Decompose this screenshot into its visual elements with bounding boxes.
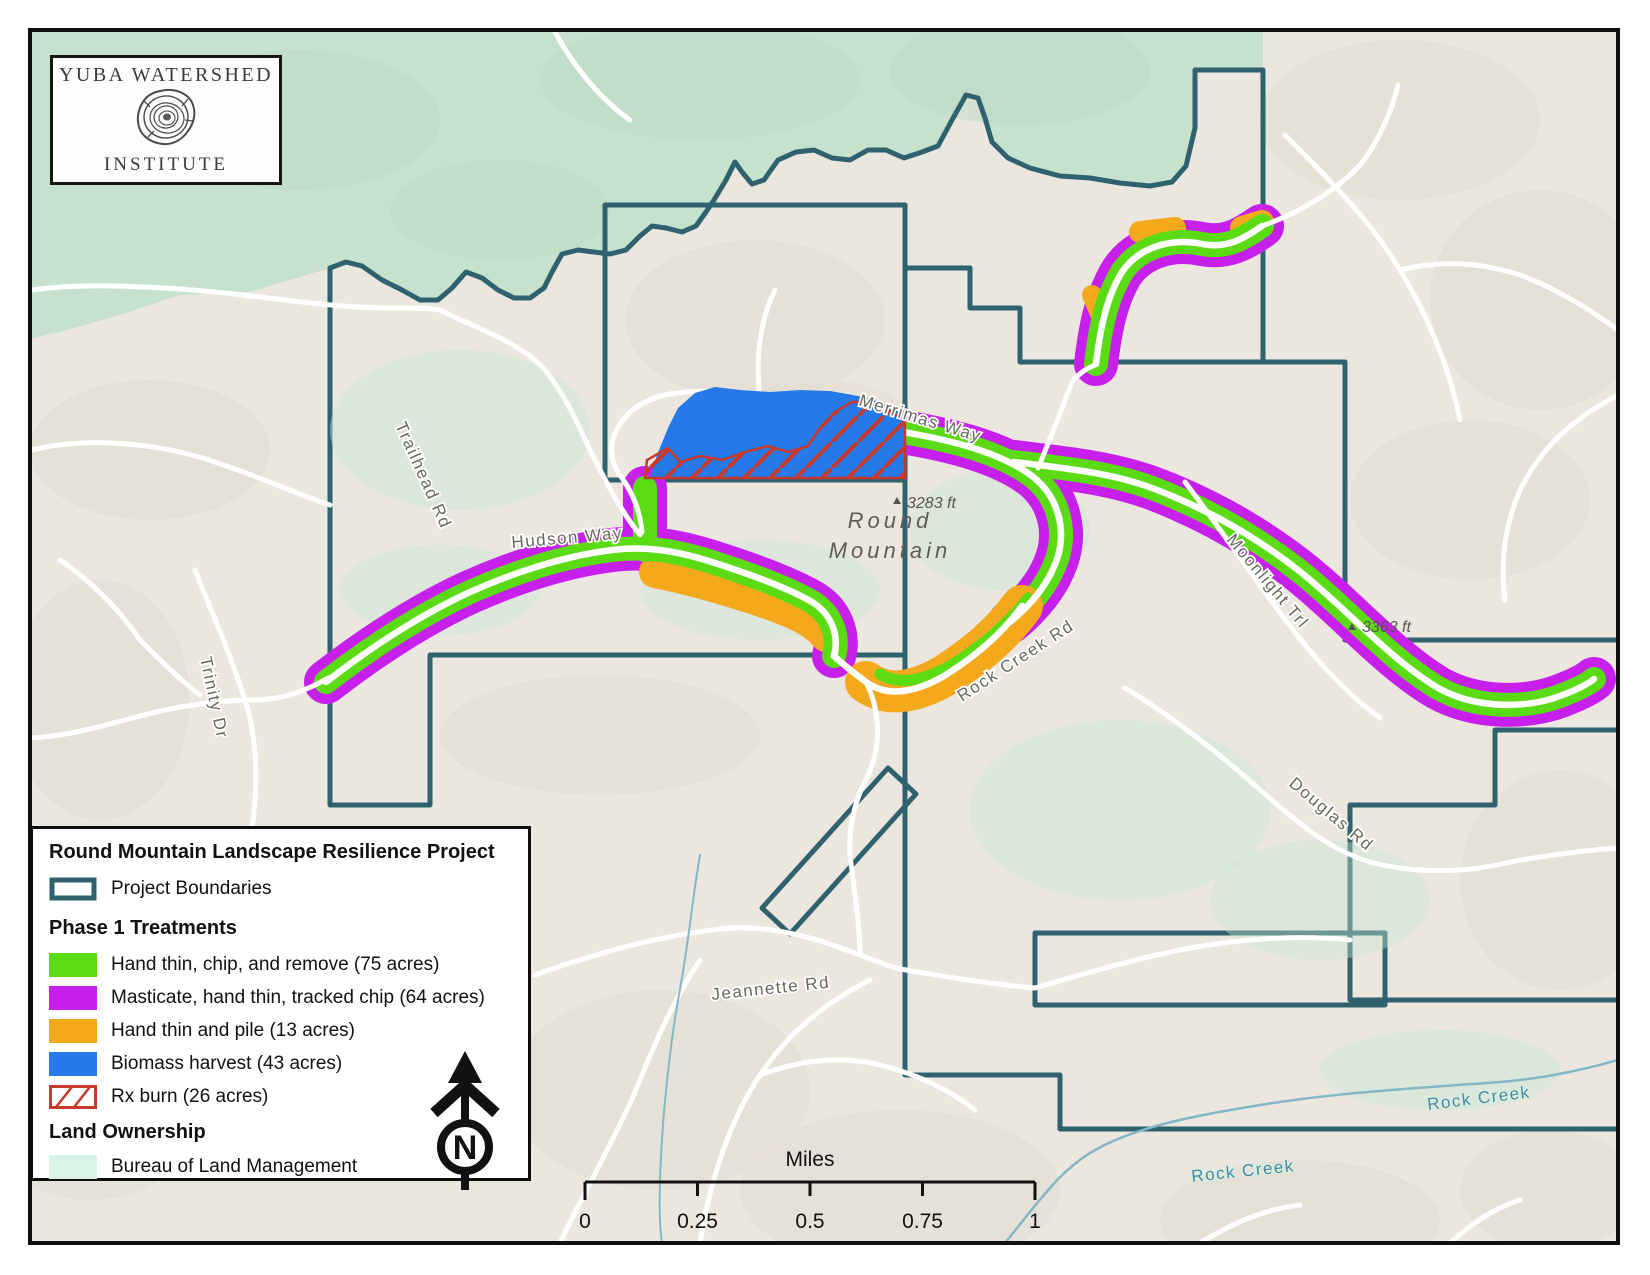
- legend-label-biomass-harvest: Biomass harvest (43 acres): [111, 1053, 342, 1075]
- north-arrow: N: [420, 1045, 510, 1200]
- logo-title-line1: YUBA WATERSHED: [53, 64, 279, 87]
- legend-row-project-boundaries: Project Boundaries: [49, 877, 272, 901]
- blm-swatch: [49, 1155, 97, 1179]
- legend-label-project-boundaries: Project Boundaries: [111, 878, 272, 900]
- legend-label-hand-thin-pile: Hand thin and pile (13 acres): [111, 1020, 355, 1042]
- legend-label-rx-burn: Rx burn (26 acres): [111, 1086, 268, 1108]
- mountain-label-line2: Mountain: [829, 538, 952, 563]
- rx-burn-swatch: [49, 1085, 97, 1109]
- legend-row-blm: Bureau of Land Management: [49, 1155, 357, 1179]
- legend-title: Round Mountain Landscape Resilience Proj…: [49, 841, 495, 864]
- biomass-harvest-swatch: [49, 1052, 97, 1076]
- legend-label-hand-thin-chip-remove: Hand thin, chip, and remove (75 acres): [111, 954, 439, 976]
- legend-row-biomass-harvest: Biomass harvest (43 acres): [49, 1052, 342, 1076]
- yuba-watershed-institute-logo: YUBA WATERSHED INSTITUTE: [50, 55, 282, 185]
- legend-label-masticate: Masticate, hand thin, tracked chip (64 a…: [111, 987, 485, 1009]
- scale-tick-1: 1: [1029, 1210, 1041, 1233]
- logo-title-line2: INSTITUTE: [53, 154, 279, 176]
- hand-thin-pile-swatch: [49, 1019, 97, 1043]
- north-arrow-n: N: [453, 1129, 478, 1167]
- legend-row-hand-thin-pile: Hand thin and pile (13 acres): [49, 1019, 355, 1043]
- project-boundaries-swatch: [49, 877, 97, 901]
- elevation-label-3363: 3363 ft: [1362, 619, 1411, 636]
- scale-bar-line: [585, 1182, 1035, 1200]
- scale-tick-025: 0.25: [677, 1210, 718, 1233]
- masticate-swatch: [49, 986, 97, 1010]
- legend-ownership-header: Land Ownership: [49, 1121, 206, 1144]
- scale-tick-05: 0.5: [795, 1210, 824, 1233]
- legend-row-masticate: Masticate, hand thin, tracked chip (64 a…: [49, 986, 485, 1010]
- map-page: Trailhead Rd Trinity Dr Hudson Way Merri…: [0, 0, 1650, 1275]
- hand-thin-chip-remove-swatch: [49, 953, 97, 977]
- legend-row-rx-burn: Rx burn (26 acres): [49, 1085, 268, 1109]
- scale-bar: Miles 0 0.25 0.5 0.75 1: [560, 1148, 1060, 1248]
- scale-tick-0: 0: [579, 1210, 591, 1233]
- elevation-label-3283: 3283 ft: [907, 495, 956, 512]
- legend-row-hand-thin-chip-remove: Hand thin, chip, and remove (75 acres): [49, 953, 439, 977]
- legend-label-blm: Bureau of Land Management: [111, 1156, 357, 1178]
- scale-tick-075: 0.75: [902, 1210, 943, 1233]
- legend-phase-header: Phase 1 Treatments: [49, 917, 237, 940]
- scale-bar-units: Miles: [785, 1148, 834, 1171]
- tree-ring-icon: [130, 87, 202, 149]
